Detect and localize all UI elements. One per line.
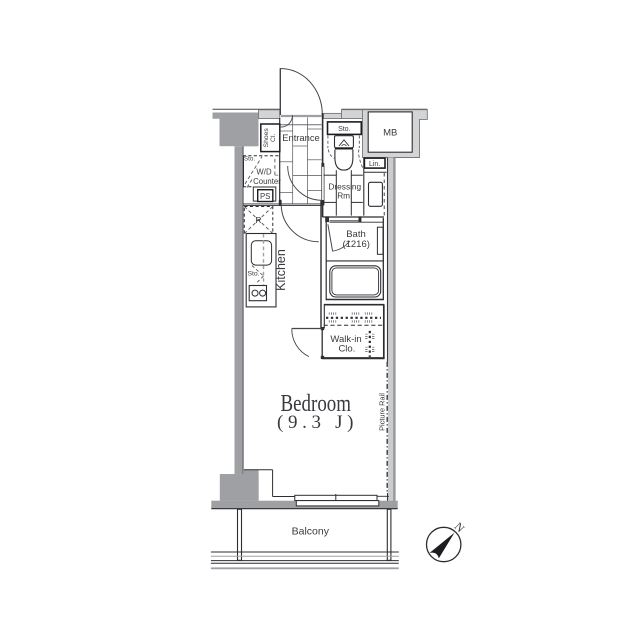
svg-text:Counter: Counter	[253, 177, 281, 186]
svg-text:Sto.: Sto.	[248, 270, 260, 277]
svg-text:Sto.: Sto.	[244, 156, 255, 163]
svg-text:(9.3 J): (9.3 J)	[277, 412, 354, 433]
svg-text:Balcony: Balcony	[292, 526, 330, 538]
svg-text:R: R	[255, 215, 261, 225]
svg-text:Rm.: Rm.	[337, 191, 352, 201]
svg-text:Kitchen: Kitchen	[274, 249, 288, 291]
svg-text:Lin.: Lin.	[369, 161, 380, 168]
svg-text:Picture Rail: Picture Rail	[377, 393, 386, 431]
svg-text:Sto.: Sto.	[338, 126, 351, 133]
svg-text:W/D: W/D	[256, 168, 272, 177]
svg-text:Entrance: Entrance	[282, 132, 320, 143]
svg-text:PS: PS	[260, 192, 270, 201]
svg-text:MB: MB	[383, 128, 397, 139]
svg-text:Clo.: Clo.	[338, 343, 355, 354]
svg-text:(1216): (1216)	[342, 239, 369, 250]
